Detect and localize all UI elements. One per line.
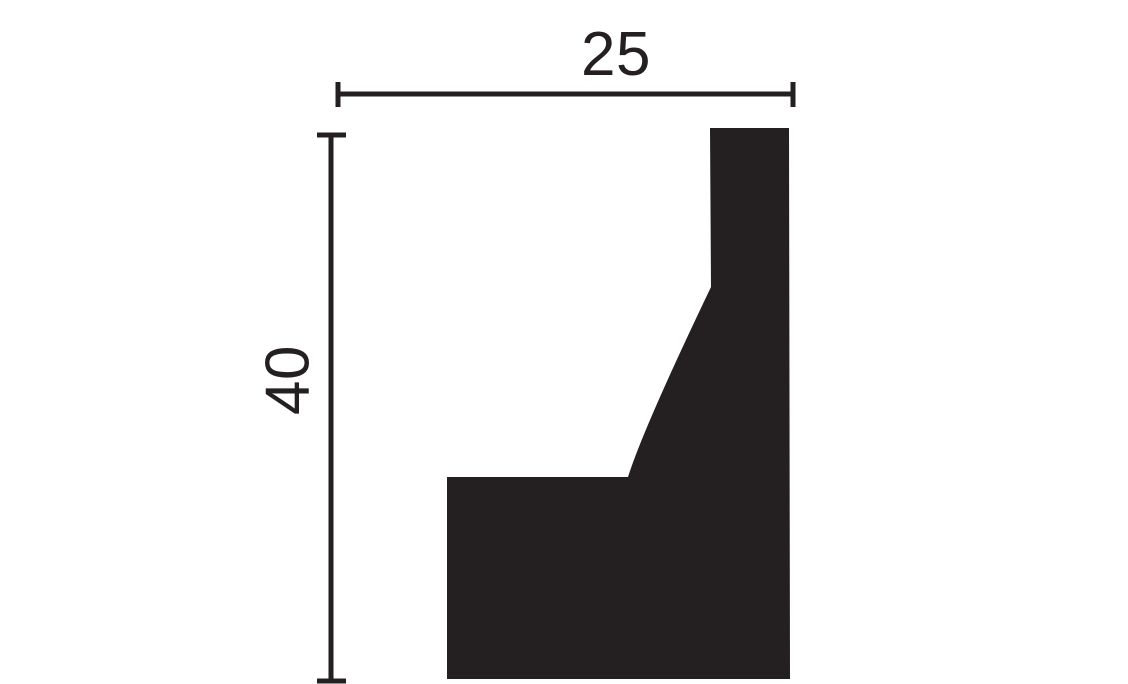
molding-profile-silhouette bbox=[447, 128, 790, 679]
width-dimension-line bbox=[338, 82, 793, 107]
height-dimension-label: 40 bbox=[254, 345, 323, 415]
width-dimension-label: 25 bbox=[581, 20, 651, 89]
diagram-svg: 25 40 bbox=[0, 0, 1128, 684]
profile-diagram: 25 40 bbox=[0, 0, 1128, 684]
